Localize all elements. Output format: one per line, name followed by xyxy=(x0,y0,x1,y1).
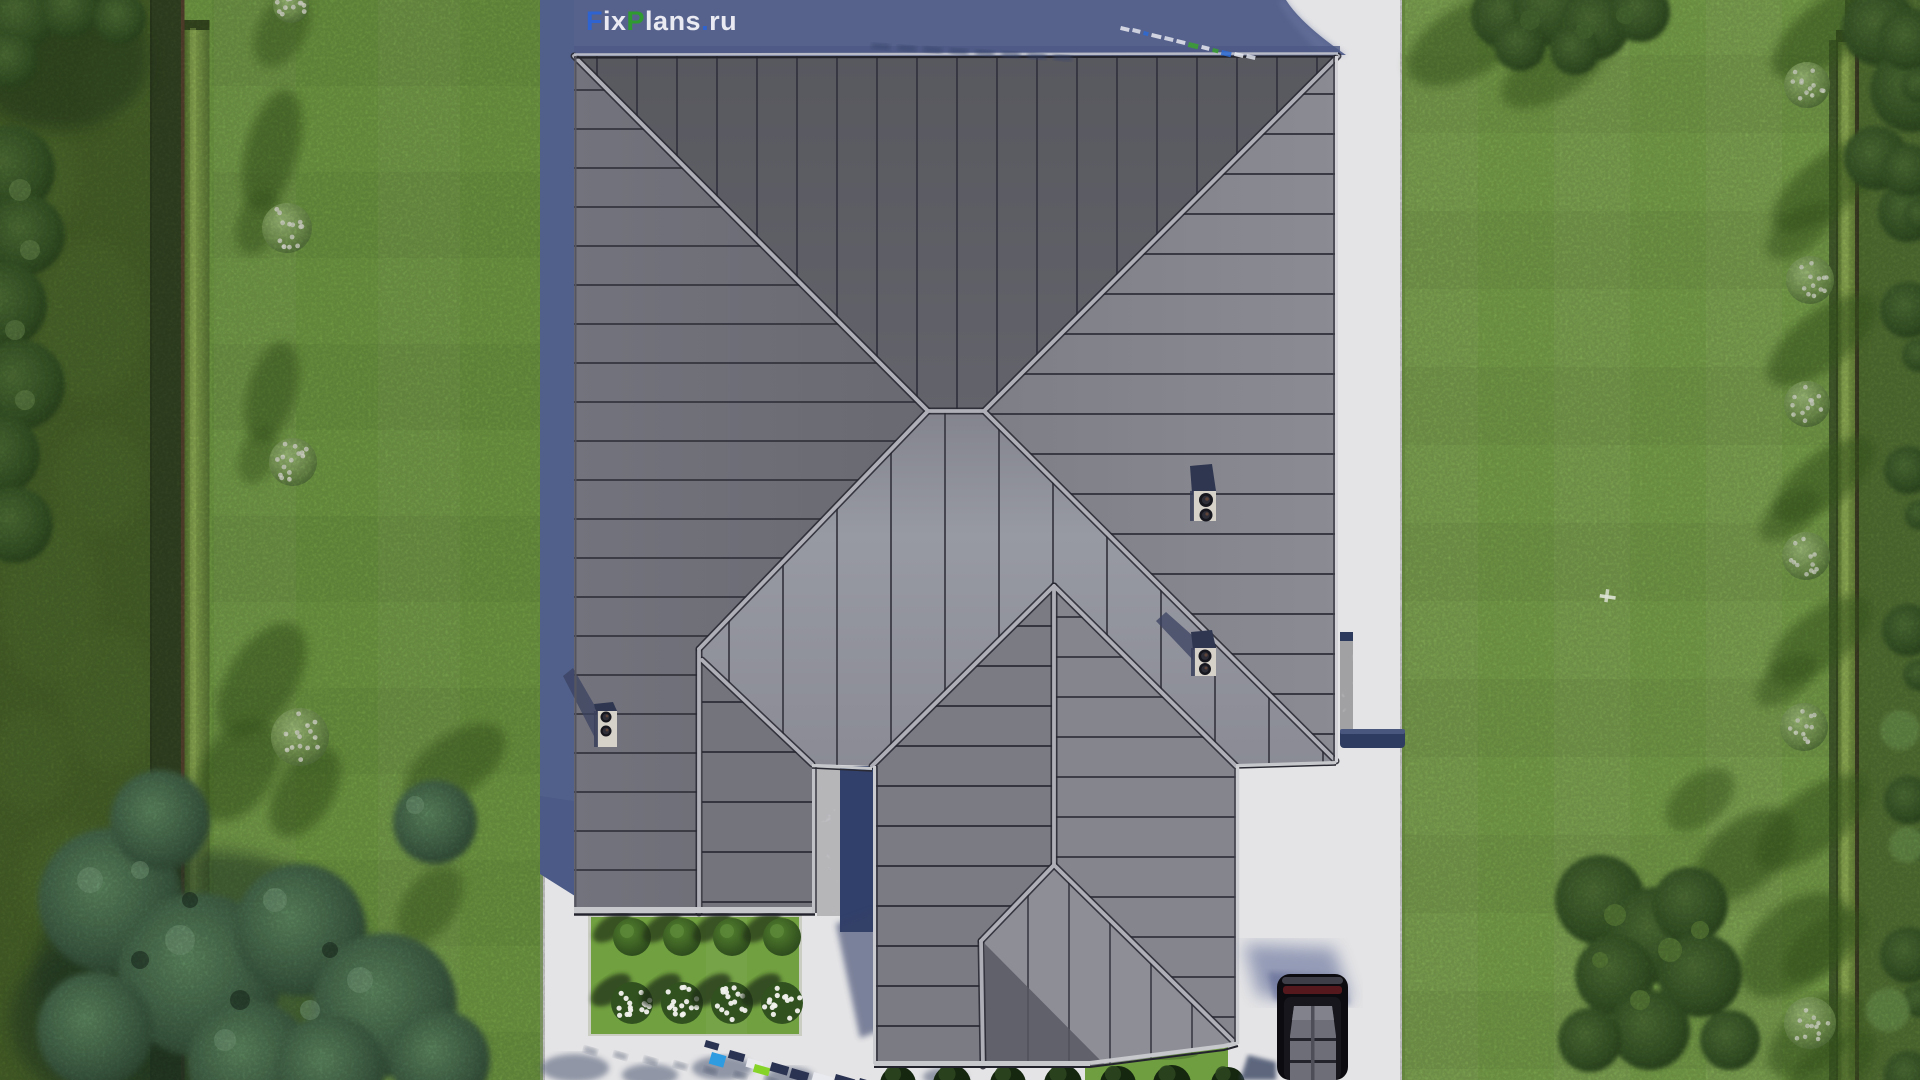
svg-text:FixPlans.ru: FixPlans.ru xyxy=(586,6,737,36)
